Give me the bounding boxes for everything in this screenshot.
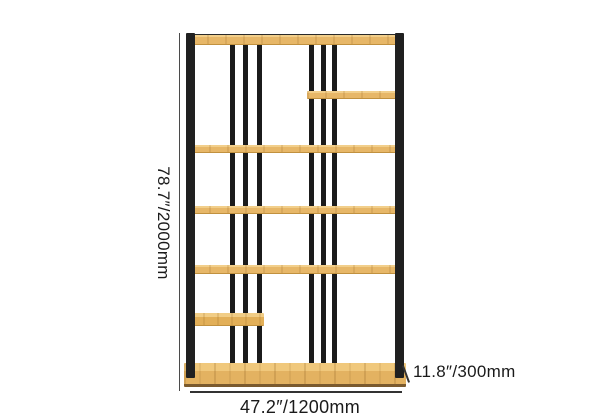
slat-right-group-3 [332, 40, 337, 370]
middle-shelf-1 [191, 145, 399, 153]
lower-left-shelf [189, 313, 264, 326]
middle-shelf-2 [191, 206, 399, 214]
upper-right-shelf [307, 91, 398, 99]
width-dimension-label: 47.2″/1200mm [200, 396, 400, 418]
depth-dimension-label: 11.8″/300mm [413, 361, 516, 383]
top-shelf [189, 34, 404, 45]
left-frame-post [186, 33, 195, 378]
height-dimension-line [179, 33, 180, 391]
base-shelf [184, 363, 406, 387]
middle-shelf-3 [191, 265, 401, 274]
width-dimension-line [190, 391, 402, 393]
height-dimension-label: 78.7″/2000mm [153, 163, 173, 283]
dimension-diagram: 78.7″/2000mm 47.2″/1200mm 11.8″/300mm [0, 0, 600, 420]
slat-right-group-1 [309, 40, 314, 370]
right-frame-post [395, 33, 404, 378]
slat-right-group-2 [321, 40, 326, 370]
